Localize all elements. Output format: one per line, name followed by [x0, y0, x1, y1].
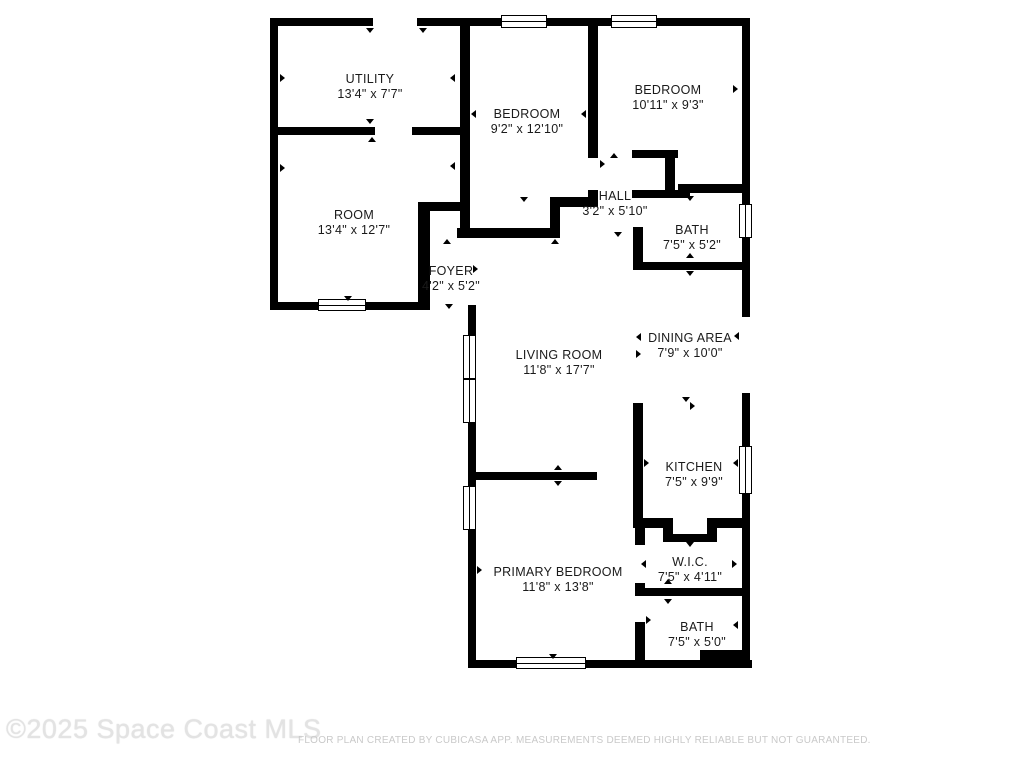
wall-segment	[468, 660, 518, 668]
door-marker	[581, 110, 586, 118]
door-marker	[733, 459, 738, 467]
room-name: LIVING ROOM	[516, 348, 603, 363]
wall-segment	[742, 393, 750, 448]
door-marker	[646, 616, 651, 624]
door-marker	[636, 333, 641, 341]
room-dimensions: 9'2" x 12'10"	[491, 122, 563, 137]
disclaimer-text: FLOOR PLAN CREATED BY CUBICASA APP. MEAS…	[298, 735, 871, 746]
room-name: FOYER	[422, 264, 480, 279]
room-dimensions: 7'5" x 4'11"	[658, 570, 722, 585]
wall-segment	[707, 518, 745, 528]
room-label-bedroom-2: BEDROOM10'11" x 9'3"	[632, 83, 704, 113]
wall-segment	[635, 528, 645, 545]
door-marker	[549, 654, 557, 659]
wall-segment	[270, 18, 278, 310]
door-marker	[280, 74, 285, 82]
door-marker	[686, 542, 694, 547]
room-label-bedroom-1: BEDROOM9'2" x 12'10"	[491, 107, 563, 137]
wall-segment	[412, 127, 468, 135]
floor-plan-canvas: ©2025 Space Coast MLS FLOOR PLAN CREATED…	[0, 0, 1024, 768]
room-name: BEDROOM	[632, 83, 704, 98]
wall-segment	[270, 302, 322, 310]
door-marker	[554, 465, 562, 470]
room-name: BATH	[668, 620, 726, 635]
door-marker	[450, 74, 455, 82]
room-label-bath-1: BATH7'5" x 5'2"	[663, 223, 721, 253]
door-marker	[733, 85, 738, 93]
room-name: HALL	[582, 189, 647, 204]
room-label-kitchen: KITCHEN7'5" x 9'9"	[665, 460, 723, 490]
wall-segment	[633, 403, 643, 528]
window-glyph	[739, 204, 752, 238]
wall-segment	[742, 18, 750, 205]
wall-segment	[633, 262, 742, 270]
wall-segment	[278, 127, 375, 135]
room-name: BATH	[663, 223, 721, 238]
window-glyph	[611, 15, 657, 28]
door-marker	[368, 137, 376, 142]
room-label-room: ROOM13'4" x 12'7"	[318, 208, 390, 238]
wall-segment	[457, 228, 560, 238]
wall-segment	[742, 238, 750, 317]
door-marker	[551, 239, 559, 244]
room-name: KITCHEN	[665, 460, 723, 475]
room-dimensions: 3'2" x 5'10"	[582, 204, 647, 219]
room-label-wic: W.I.C.7'5" x 4'11"	[658, 555, 722, 585]
door-marker	[682, 397, 690, 402]
door-marker	[732, 560, 737, 568]
wall-segment	[473, 472, 597, 480]
room-label-bath-2: BATH7'5" x 5'0"	[668, 620, 726, 650]
window-glyph	[463, 379, 476, 423]
door-marker	[344, 296, 352, 301]
room-label-foyer: FOYER4'2" x 5'2"	[422, 264, 480, 294]
wall-segment	[364, 302, 423, 310]
door-marker	[686, 271, 694, 276]
wall-segment	[547, 18, 613, 26]
door-marker	[636, 350, 641, 358]
door-marker	[686, 253, 694, 258]
room-dimensions: 7'5" x 5'2"	[663, 238, 721, 253]
room-dimensions: 7'5" x 5'0"	[668, 635, 726, 650]
room-label-primary-bedroom: PRIMARY BEDROOM11'8" x 13'8"	[493, 565, 622, 595]
room-dimensions: 4'2" x 5'2"	[422, 279, 480, 294]
room-dimensions: 10'11" x 9'3"	[632, 98, 704, 113]
room-dimensions: 13'4" x 7'7"	[337, 87, 402, 102]
room-label-living-room: LIVING ROOM11'8" x 17'7"	[516, 348, 603, 378]
wall-segment	[657, 18, 750, 26]
room-label-dining-area: DINING AREA7'9" x 10'0"	[648, 331, 732, 361]
room-name: ROOM	[318, 208, 390, 223]
door-marker	[471, 110, 476, 118]
door-marker	[477, 566, 482, 574]
window-glyph	[463, 486, 476, 530]
door-marker	[366, 28, 374, 33]
room-name: UTILITY	[337, 72, 402, 87]
room-dimensions: 11'8" x 17'7"	[516, 363, 603, 378]
wall-segment	[700, 650, 742, 660]
window-glyph	[463, 335, 476, 379]
door-marker	[686, 196, 694, 201]
door-marker	[664, 599, 672, 604]
door-marker	[610, 153, 618, 158]
room-name: BEDROOM	[491, 107, 563, 122]
door-marker	[443, 239, 451, 244]
door-marker	[450, 162, 455, 170]
room-name: W.I.C.	[658, 555, 722, 570]
door-marker	[445, 304, 453, 309]
watermark-text: ©2025 Space Coast MLS	[6, 714, 322, 745]
door-marker	[690, 402, 695, 410]
wall-segment	[678, 184, 742, 193]
door-marker	[734, 332, 739, 340]
door-marker	[614, 232, 622, 237]
door-marker	[520, 197, 528, 202]
door-marker	[600, 160, 605, 168]
wall-segment	[586, 660, 752, 668]
wall-segment	[635, 622, 645, 668]
door-marker	[733, 621, 738, 629]
door-marker	[419, 28, 427, 33]
door-marker	[554, 481, 562, 486]
door-marker	[644, 459, 649, 467]
window-glyph	[739, 446, 752, 494]
window-glyph	[318, 299, 366, 311]
room-dimensions: 11'8" x 13'8"	[493, 580, 622, 595]
wall-segment	[635, 588, 742, 596]
room-label-utility: UTILITY13'4" x 7'7"	[337, 72, 402, 102]
room-dimensions: 13'4" x 12'7"	[318, 223, 390, 238]
door-marker	[641, 560, 646, 568]
wall-segment	[270, 18, 373, 26]
room-name: PRIMARY BEDROOM	[493, 565, 622, 580]
room-dimensions: 7'5" x 9'9"	[665, 475, 723, 490]
window-glyph	[501, 15, 547, 28]
room-label-hall: HALL3'2" x 5'10"	[582, 189, 647, 219]
room-dimensions: 7'9" x 10'0"	[648, 346, 732, 361]
door-marker	[366, 119, 374, 124]
wall-segment	[588, 26, 598, 158]
room-name: DINING AREA	[648, 331, 732, 346]
door-marker	[280, 164, 285, 172]
